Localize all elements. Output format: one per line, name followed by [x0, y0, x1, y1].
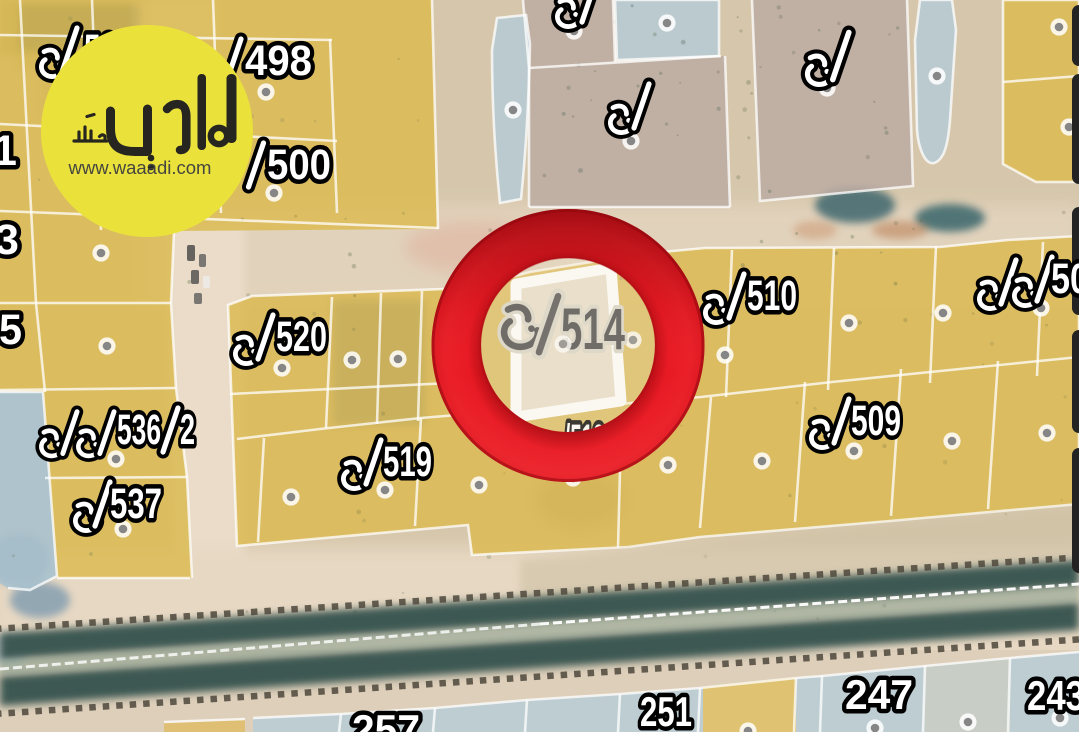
svg-text:55: 55 — [0, 306, 22, 354]
svg-text:520: 520 — [276, 313, 327, 361]
svg-text:498: 498 — [245, 37, 312, 85]
svg-text:50: 50 — [1051, 255, 1079, 303]
svg-text:247: 247 — [845, 671, 913, 718]
svg-text:243: 243 — [1027, 672, 1079, 719]
svg-text:3: 3 — [0, 216, 19, 264]
svg-text:www.waaadi.com: www.waaadi.com — [68, 157, 212, 178]
svg-text:257: 257 — [352, 706, 420, 732]
svg-text:510: 510 — [747, 272, 797, 320]
svg-text:509: 509 — [851, 397, 901, 445]
svg-text:2: 2 — [180, 406, 195, 454]
svg-text:251: 251 — [640, 688, 692, 732]
svg-text:537: 537 — [110, 480, 162, 528]
svg-text:1: 1 — [0, 127, 17, 175]
svg-text:536: 536 — [117, 406, 161, 454]
svg-text:519: 519 — [383, 438, 432, 486]
svg-text:500: 500 — [267, 141, 331, 189]
